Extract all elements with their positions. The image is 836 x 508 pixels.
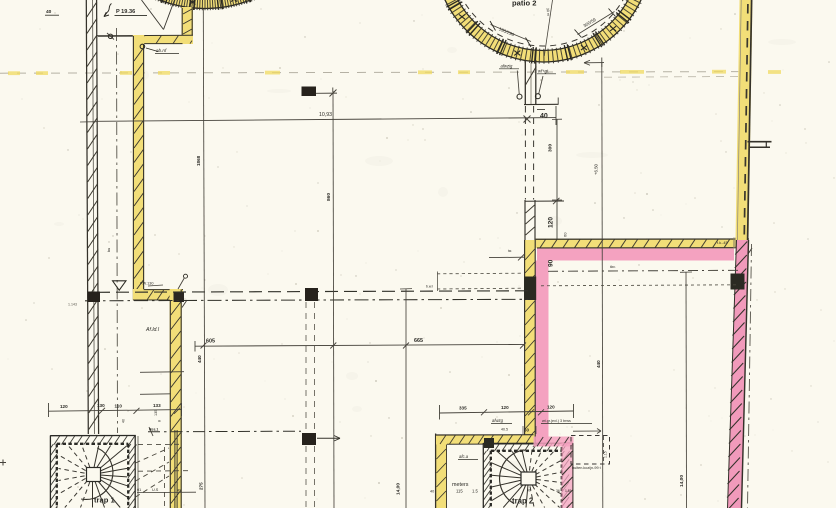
svg-text:36: 36 <box>556 489 560 493</box>
svg-text:P 19.36: P 19.36 <box>116 9 135 15</box>
svg-text:60: 60 <box>524 428 529 433</box>
svg-text:1.15: 1.15 <box>604 451 608 458</box>
svg-text:meters: meters <box>452 482 469 488</box>
svg-text:8: 8 <box>158 420 162 422</box>
svg-text:1868: 1868 <box>196 155 201 166</box>
svg-text:120: 120 <box>501 405 509 410</box>
svg-text:133: 133 <box>153 403 161 408</box>
svg-text:trap 1: trap 1 <box>94 496 115 505</box>
svg-text:01: 01 <box>137 488 141 492</box>
svg-text:275: 275 <box>199 482 204 490</box>
svg-text:Af.ld.l: Af.ld.l <box>145 327 160 333</box>
svg-text:40: 40 <box>540 113 548 120</box>
svg-text:665: 665 <box>414 338 423 344</box>
svg-text:30 m: 30 m <box>546 8 551 16</box>
svg-text:afc.a: afc.a <box>459 454 469 459</box>
svg-text:b.w.l: b.w.l <box>426 285 433 289</box>
svg-text:120: 120 <box>60 404 68 409</box>
svg-text:+6.50: +6.50 <box>594 164 599 175</box>
svg-text:120: 120 <box>547 405 555 410</box>
svg-text:t.k.-45: t.k.-45 <box>717 241 728 245</box>
svg-text:ab.nf: ab.nf <box>156 48 167 53</box>
svg-text:10,93: 10,93 <box>319 112 332 118</box>
svg-text:135: 135 <box>154 410 158 416</box>
svg-text:115: 115 <box>456 489 463 494</box>
svg-text:40: 40 <box>122 419 126 423</box>
svg-text:afwzg: afwzg <box>492 418 504 423</box>
svg-text:40.5: 40.5 <box>501 428 508 432</box>
svg-text:1.143: 1.143 <box>68 303 77 307</box>
svg-text:40: 40 <box>46 9 52 15</box>
svg-text:49: 49 <box>177 489 181 493</box>
svg-text:wt.gr.(exl.) 3 brws: wt.gr.(exl.) 3 brws <box>542 419 571 423</box>
svg-text:130: 130 <box>97 403 105 408</box>
svg-text:40: 40 <box>430 489 434 493</box>
svg-text:Res.1: Res.1 <box>149 428 158 432</box>
svg-text:bu: bu <box>107 248 111 252</box>
svg-text:440: 440 <box>596 360 601 368</box>
svg-text:U.S: U.S <box>152 488 159 492</box>
svg-text:1.5: 1.5 <box>472 489 478 494</box>
svg-text:1.81: 1.81 <box>565 489 572 493</box>
svg-text:300: 300 <box>548 144 554 152</box>
svg-text:buiten.kozijn-99 t: buiten.kozijn-99 t <box>572 466 602 470</box>
svg-text:afwzig: afwzig <box>501 63 514 68</box>
svg-text:14,00: 14,00 <box>679 475 685 487</box>
svg-text:tbv.: tbv. <box>610 265 616 269</box>
svg-text:335: 335 <box>459 405 467 410</box>
svg-text:860: 860 <box>326 193 332 201</box>
svg-text:wf+gt.: wf+gt. <box>538 68 549 73</box>
svg-text:120: 120 <box>548 217 555 228</box>
svg-text:605: 605 <box>206 339 215 345</box>
svg-text:tw.: tw. <box>508 249 512 253</box>
svg-text:14,00: 14,00 <box>396 483 402 495</box>
svg-text:440: 440 <box>197 355 202 363</box>
svg-text:patio 2: patio 2 <box>512 0 536 7</box>
svg-text:40: 40 <box>527 489 531 493</box>
svg-text:60: 60 <box>563 232 568 237</box>
svg-text:90: 90 <box>548 259 555 267</box>
svg-text:trap 2: trap 2 <box>512 497 534 506</box>
svg-text:RW.130: RW.130 <box>140 282 153 286</box>
svg-text:110: 110 <box>115 403 123 408</box>
